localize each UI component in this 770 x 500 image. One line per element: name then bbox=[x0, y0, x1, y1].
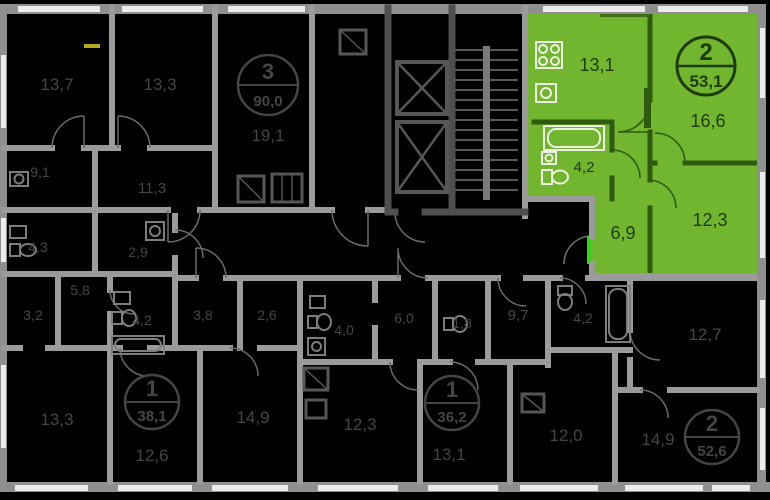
room-area-label: 14,9 bbox=[236, 408, 269, 427]
room-area-label: 4,3 bbox=[28, 239, 48, 255]
room-area-label: 4,2 bbox=[573, 310, 593, 326]
badge-total-area: 90,0 bbox=[253, 93, 282, 110]
selected-unit-badge[interactable]: 2 53,1 bbox=[677, 37, 735, 95]
room-area-label: 2,9 bbox=[128, 244, 148, 260]
room-area-label: 13,7 bbox=[40, 75, 73, 94]
stair-stringer bbox=[483, 46, 490, 200]
badge-rooms-count: 2 bbox=[706, 411, 718, 436]
room-area-label: 3,8 bbox=[193, 307, 213, 323]
entrance-door[interactable] bbox=[587, 236, 592, 264]
radiator bbox=[644, 88, 651, 128]
bedroom-area-label: 12,3 bbox=[692, 210, 727, 230]
floorplan-canvas: 13,1 16,6 4,2 6,9 12,3 2 53,1 bbox=[0, 0, 770, 500]
room-area-label: 6,0 bbox=[394, 310, 414, 326]
room-area-label: 12,0 bbox=[549, 426, 582, 445]
room-area-label: 9,7 bbox=[508, 307, 529, 324]
badge-rooms-count: 1 bbox=[446, 377, 458, 402]
badge-rooms-count: 3 bbox=[262, 59, 274, 84]
room-area-label: 4,0 bbox=[334, 322, 354, 338]
badge-total-area: 52,6 bbox=[697, 443, 726, 460]
living-area-label: 16,6 bbox=[690, 111, 725, 131]
room-area-label: 12,6 bbox=[135, 446, 168, 465]
room-area-label: 2,6 bbox=[257, 307, 277, 323]
badge-total-area: 38,1 bbox=[137, 408, 166, 425]
bath-area-label: 4,2 bbox=[574, 159, 595, 176]
room-area-label: 19,1 bbox=[251, 126, 284, 145]
room-area-label: 4,2 bbox=[132, 312, 152, 328]
room-area-label: 12,7 bbox=[688, 325, 721, 344]
badge-total-area: 53,1 bbox=[689, 72, 722, 91]
floorplan-svg: 13,1 16,6 4,2 6,9 12,3 2 53,1 bbox=[0, 0, 770, 500]
room-area-label: 9,1 bbox=[30, 164, 50, 180]
badge-rooms-count: 1 bbox=[146, 376, 158, 401]
apartment-boundary-wall bbox=[592, 273, 757, 281]
room-area-label: 12,3 bbox=[343, 415, 376, 434]
room-area-label: 1,8 bbox=[452, 315, 472, 331]
badge-rooms-count: 2 bbox=[699, 39, 712, 66]
badge-total-area: 36,2 bbox=[437, 409, 466, 426]
room-area-label: 3,2 bbox=[23, 307, 43, 323]
hall-area-label: 6,9 bbox=[610, 223, 635, 243]
room-area-label: 5,8 bbox=[70, 282, 90, 298]
room-area-label: 13,3 bbox=[40, 410, 73, 429]
room-area-label: 13,1 bbox=[432, 445, 465, 464]
gas-mark bbox=[84, 44, 100, 48]
room-area-label: 13,3 bbox=[143, 75, 176, 94]
room-area-label: 14,9 bbox=[641, 430, 674, 449]
kitchen-area-label: 13,1 bbox=[579, 55, 614, 75]
room-area-label: 11,3 bbox=[138, 180, 166, 197]
